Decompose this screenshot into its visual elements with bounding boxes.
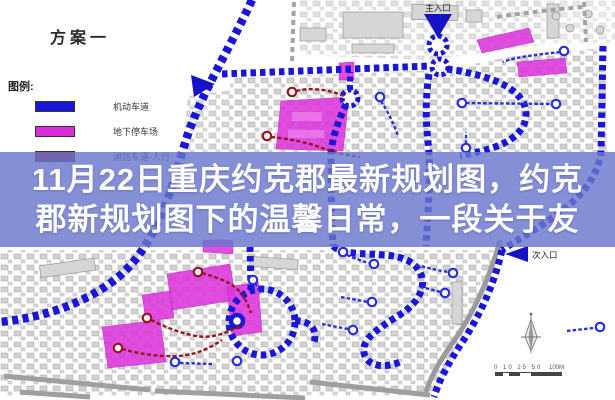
roundabout-b: [432, 59, 448, 75]
legend-item-parking: 地下停车场: [35, 125, 170, 137]
caption-line-1: 11月22日重庆约克郡最新规划图，约克: [32, 160, 583, 200]
road-junction-node: [231, 315, 243, 327]
legend-item-motorway: 机动车道: [35, 100, 170, 112]
caption-band: 11月22日重庆约克郡最新规划图，约克 郡新规划图下的温馨日常，一段关于友: [0, 152, 615, 247]
motorway-label: 机动车道: [113, 100, 149, 113]
parking-label: 地下停车场: [113, 125, 158, 138]
entrance-circle: [429, 36, 447, 54]
main-entrance-label: 主入口: [425, 3, 451, 13]
compass-icon: [521, 313, 541, 353]
plan-title: 方案一: [50, 24, 110, 48]
legend-heading: 图例:: [8, 78, 170, 94]
secondary-entrance-arrow-icon: [505, 246, 528, 262]
motorway-color-swatch: [35, 101, 75, 112]
scale-end-label: 100M: [549, 365, 564, 371]
scale-bar: 0 10 25 50 100M: [494, 365, 564, 376]
secondary-entrance-label: 次入口: [532, 250, 558, 260]
caption-line-2: 郡新规划图下的温馨日常，一段关于友: [36, 200, 580, 240]
scale-ticks-label: 0 10 25 50: [494, 365, 542, 371]
planning-map-screenshot: 主入口 次入口 0 10 25 50 100M 方案一 图例: 机动车道: [0, 0, 615, 400]
parking-color-swatch: [35, 126, 75, 137]
roundabout-a: [342, 90, 358, 106]
